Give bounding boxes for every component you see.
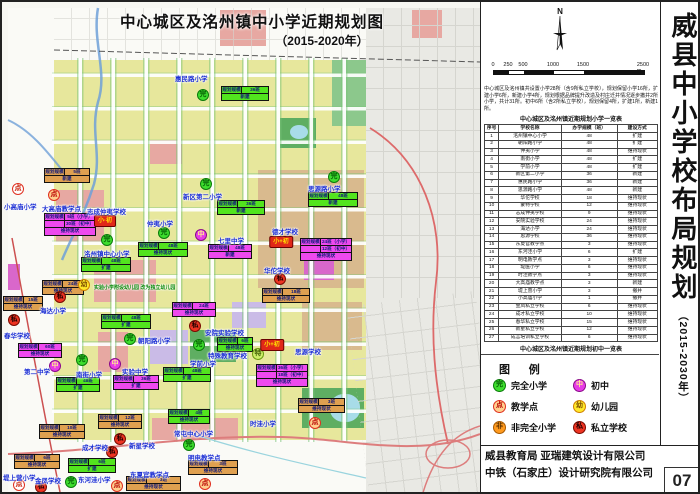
school-plan-label: 规划规模6班扩建 xyxy=(68,458,116,473)
plan-label-row: 维持现状 xyxy=(301,252,351,259)
plan-label-value: 维持现状 xyxy=(4,304,42,310)
plan-label-value: 扩建 xyxy=(69,466,115,472)
plan-label-row: 规划规模24班（小学） xyxy=(301,239,351,245)
table-cell: 明电教学点 xyxy=(499,257,562,265)
table-cell: 东河洼小学 xyxy=(499,249,562,257)
table-cell: 18 xyxy=(485,264,499,272)
plan-label-row: 规划规模4班 xyxy=(169,410,209,416)
north-arrow-icon: N xyxy=(549,6,571,58)
table-cell: 48 xyxy=(561,140,617,148)
plan-label-row: 新建 xyxy=(309,199,357,206)
plan-label-row: 12班（初中） xyxy=(301,245,351,252)
plan-label-row: 规划规模10班 xyxy=(40,425,84,431)
table-cell: 6 xyxy=(561,303,617,311)
table-cell: 东夏官教学点 xyxy=(499,241,562,249)
table-row: 27成言培训私立学校6维持现状 xyxy=(485,334,658,342)
table-row: 9华佗学校18维持现状 xyxy=(485,195,658,203)
plan-label-value: 扩建 xyxy=(114,383,158,389)
dianw-school-icon: 点 xyxy=(12,183,24,195)
table-row: 19时洼教学点3维持现状 xyxy=(485,272,658,280)
plan-label-row: 维持现状 xyxy=(139,249,187,256)
table-cell: 6 xyxy=(485,171,499,179)
table-cell: 维持现状 xyxy=(617,272,657,280)
info-panel: N 0250500100015002500 m 中心城区及洺州镇共设置小学28所… xyxy=(480,2,660,445)
table-cell: 维持现状 xyxy=(617,226,657,234)
table-row: 26新星私立学校12维持现状 xyxy=(485,326,658,334)
zhong-school-icon: 中 xyxy=(109,358,121,370)
school-name-label: 大高庙教学点 xyxy=(42,203,81,213)
primary-school-table: 序号学校名称办学规模（班）建设方式1洺州镇中心小学48扩建2朝阳路小学48扩建3… xyxy=(484,124,658,342)
table-cell: 4 xyxy=(485,156,499,164)
table-cell: 扩建 xyxy=(617,140,657,148)
scale-bar-rule xyxy=(493,70,645,75)
plan-label-row: 规划规模6班 xyxy=(69,459,115,465)
plan-label-row: 新建 xyxy=(209,251,251,258)
table-row: 13海达小学24维持现状 xyxy=(485,226,658,234)
school-plan-label: 规划规模36班扩建 xyxy=(113,375,159,390)
school-plan-label: 规划规模36班新建 xyxy=(221,86,269,101)
table-cell: 维持现状 xyxy=(617,326,657,334)
plan-label-key: 规划规模 xyxy=(222,87,242,93)
table-cell: 3 xyxy=(561,288,617,296)
table-cell: 朝阳路小学 xyxy=(499,140,562,148)
table-cell: 海达小学 xyxy=(499,226,562,234)
plan-label-key: 规划规模 xyxy=(4,297,24,303)
plan-label-row: 规划规模12班 xyxy=(99,415,141,421)
school-name-label: 南街小学 xyxy=(76,369,102,379)
plan-label-value: 扩建 xyxy=(164,375,210,381)
school-plan-label: 规划规模18班维持现状 xyxy=(262,288,310,303)
si-school-icon: 私 xyxy=(573,421,586,434)
school-name-label: 第二中学 xyxy=(24,366,50,376)
school-plan-label: 规划规模4班维持现状 xyxy=(168,409,210,424)
dian-school-icon: 点 xyxy=(111,480,123,492)
plan-label-row: 规划规模6班 xyxy=(218,338,252,344)
plan-label-value: 维持现状 xyxy=(15,462,59,468)
primary-middle-school-icon: 小+初 xyxy=(260,339,284,351)
plan-label-row: 规划规模60班 xyxy=(19,344,61,350)
plan-label-row: 维持现状 xyxy=(169,416,209,423)
table-row: 6新区第二小学36新建 xyxy=(485,171,658,179)
plan-label-value: 维持现状 xyxy=(299,406,344,412)
school-name-label: 仲夷小学 xyxy=(147,218,173,228)
plan-label-value: 维持现状 xyxy=(45,228,95,234)
table-cell: 48 xyxy=(561,187,617,195)
table-cell: 19 xyxy=(485,272,499,280)
table-cell: 扩建 xyxy=(617,133,657,141)
plan-label-row: 扩建 xyxy=(164,374,210,381)
plan-label-value: 48班 xyxy=(329,193,357,199)
school-plan-label: 规划规模24班维持现状 xyxy=(172,302,216,317)
school-name-label: 思源路小学 xyxy=(308,183,341,193)
plan-label-row: 维持现状 xyxy=(173,309,215,316)
table-row: 14思源学校36维持现状 xyxy=(485,233,658,241)
plan-label-value: 48班 xyxy=(229,245,251,251)
table-row: 25春华私立学校15维持现状 xyxy=(485,319,658,327)
plan-label-value: 维持现状 xyxy=(169,417,209,423)
table-cell: 维持现状 xyxy=(617,334,657,342)
plan-label-value: 扩建 xyxy=(57,385,99,391)
school-plan-label: 规划规模3班维持现状 xyxy=(188,460,238,475)
plan-label-row: 维持现状 xyxy=(40,431,84,438)
school-plan-label: 规划规模48班新建 xyxy=(308,192,358,207)
table-cell: 6 xyxy=(561,249,617,257)
plan-label-value: 扩建 xyxy=(102,322,150,328)
table-cell: 15 xyxy=(485,241,499,249)
wan-school-icon: 完 xyxy=(183,439,195,451)
plan-label-value: 10班 xyxy=(60,425,84,431)
table-row: 24成才私立学校10维持现状 xyxy=(485,311,658,319)
plan-label-key: 规划规模 xyxy=(257,365,277,371)
middle-table-title: 中心城区及洺州镇近期规划初中一览表 xyxy=(484,344,658,353)
table-cell: 南街小学 xyxy=(499,156,562,164)
legend: 图 例 完完全小学中初中点教学点幼幼儿园非非完全小学私私立学校 xyxy=(481,354,659,445)
school-name-label: 堤上营小学 xyxy=(3,472,36,482)
table-cell: 48 xyxy=(561,133,617,141)
table-row: 7惠民路小学36新建 xyxy=(485,179,658,187)
legend-item: 中初中 xyxy=(573,379,609,392)
plan-label-value: 维持现状 xyxy=(127,484,180,490)
plan-label-key: 规划规模 xyxy=(218,338,238,344)
plan-label-key: 规划规模 xyxy=(169,410,189,416)
plan-label-value: 新建 xyxy=(222,94,268,100)
table-cell: 金凤私立学校 xyxy=(499,303,562,311)
zhong-school-icon: 中 xyxy=(573,379,586,392)
school-name-label: 东河洼小学 xyxy=(78,474,111,484)
plan-label-row: 规划规模48班 xyxy=(82,258,130,264)
plan-label-row: 规划规模36班（小学） xyxy=(257,365,307,371)
table-cell: 13 xyxy=(485,226,499,234)
plan-label-value: 6班 xyxy=(35,455,59,461)
plan-label-key: 规划规模 xyxy=(69,459,89,465)
plan-label-value: 6班 xyxy=(89,459,115,465)
plan-label-key: 规划规模 xyxy=(114,376,134,382)
table-cell: 小高庙小学 xyxy=(499,295,562,303)
school-plan-label: 规划规模48班新建 xyxy=(208,244,252,259)
plan-label-value: 30班（初中） xyxy=(65,221,95,227)
plan-label-row: 维持现状 xyxy=(15,461,59,468)
scale-label: 500 xyxy=(518,62,527,68)
plan-label-value: 4班 xyxy=(189,410,209,416)
scale-bar: 0250500100015002500 m xyxy=(493,62,645,76)
table-cell: 维持现状 xyxy=(617,202,657,210)
plan-label-row: 扩建 xyxy=(57,384,99,391)
plan-label-row: 规划规模48班 xyxy=(164,368,210,374)
scale-label: 250 xyxy=(503,62,512,68)
table-cell: 蒙特学校 xyxy=(499,202,562,210)
school-name-label: 洺州镇中心小学 xyxy=(84,248,130,258)
table-row: 16东河洼小学6扩建 xyxy=(485,249,658,257)
plan-label-key xyxy=(301,246,321,252)
school-name-label: 新区第二小学 xyxy=(183,191,222,201)
table-cell: 12 xyxy=(485,218,499,226)
table-cell: 思源学校 xyxy=(499,233,562,241)
plan-label-row: 规划规模3班 xyxy=(299,399,344,405)
table-cell: 维持现状 xyxy=(617,218,657,226)
plan-label-row: 规划规模5班 xyxy=(45,169,89,175)
table-header: 序号 xyxy=(485,125,499,133)
school-plan-label: 规划规模5班新建 xyxy=(44,168,90,183)
scale-label: 1000 xyxy=(547,62,559,68)
plan-label-key: 规划规模 xyxy=(40,425,60,431)
plan-label-value: 3班 xyxy=(319,399,344,405)
plan-label-value: 5班 xyxy=(65,169,89,175)
table-cell: 新建 xyxy=(617,179,657,187)
plan-label-row: 维持现状 xyxy=(299,405,344,412)
table-cell: 17 xyxy=(485,257,499,265)
table-row: 10蒙特学校12维持现状 xyxy=(485,202,658,210)
school-plan-label: 规划规模48班扩建 xyxy=(163,367,211,382)
table-cell: 3 xyxy=(561,280,617,288)
plan-label-row: 规划规模48班 xyxy=(139,243,187,249)
table-cell: 48 xyxy=(561,148,617,156)
side-title: 威县中小学校布局规划 xyxy=(668,12,698,302)
table-cell: 10 xyxy=(561,311,617,319)
table-cell: 撤并 xyxy=(617,288,657,296)
wan-school-icon: 完 xyxy=(65,476,77,488)
plan-label-key: 规划规模 xyxy=(15,455,35,461)
scale-label: 0 xyxy=(491,62,494,68)
dian-school-icon: 点 xyxy=(199,478,211,490)
table-cell: 21 xyxy=(485,288,499,296)
table-cell: 24 xyxy=(485,311,499,319)
table-cell: 洺州镇中心小学 xyxy=(499,133,562,141)
plan-label-value: 18班 xyxy=(283,289,309,295)
wan-school-icon: 完 xyxy=(328,171,340,183)
plan-label-key: 规划规模 xyxy=(19,344,39,350)
table-cell: 新建 xyxy=(617,171,657,179)
table-cell: 维持现状 xyxy=(617,311,657,319)
table-row: 1洺州镇中心小学48扩建 xyxy=(485,133,658,141)
plan-label-row: 维持现状 xyxy=(189,467,237,474)
school-plan-label: 规划规模48班扩建 xyxy=(81,257,131,272)
plan-label-value: 新建 xyxy=(218,208,264,214)
table-cell: 36 xyxy=(561,171,617,179)
plan-label-key xyxy=(45,221,65,227)
table-cell: 维持现状 xyxy=(617,241,657,249)
table-cell: 时洼教学点 xyxy=(499,272,562,280)
plan-label-row: 维持现状 xyxy=(45,227,95,234)
primary-middle-school-icon: 小·初 xyxy=(94,215,116,227)
table-cell: 9 xyxy=(485,195,499,203)
plan-label-key: 规划规模 xyxy=(139,243,159,249)
table-cell: 维持现状 xyxy=(617,233,657,241)
plan-label-value: 48班 xyxy=(102,258,130,264)
school-name-label: 惠民路小学 xyxy=(175,73,208,83)
school-name-label: 新星学校 xyxy=(129,440,155,450)
plan-label-row: 规划规模48班 xyxy=(309,193,357,199)
credits-line1: 威县教育局 亚瑞建筑设计有限公司 xyxy=(485,448,700,463)
plan-label-row: 维持现状 xyxy=(99,421,141,428)
plan-label-value: 36班 xyxy=(238,201,264,207)
table-row: 4南街小学48扩建 xyxy=(485,156,658,164)
school-plan-label: 规划规模60班维持现状 xyxy=(18,343,62,358)
plan-label-value: 15班 xyxy=(24,297,42,303)
plan-label-row: 规划规模48班 xyxy=(102,315,150,321)
table-cell: 成言培训私立学校 xyxy=(499,334,562,342)
intro-paragraph: 中心城区及洺州镇共设置小学28所（含9所私立学校），规划保留小学16所，扩建小学… xyxy=(484,86,658,112)
school-plan-label: 规划规模48班扩建 xyxy=(56,377,100,392)
page-number: 07 xyxy=(664,467,700,494)
plan-label-row: 30班（初中） xyxy=(45,220,95,227)
plan-label-row: 维持现状 xyxy=(4,303,42,310)
table-header: 建设方式 xyxy=(617,125,657,133)
planning-poster: 中心城区及洺州镇中小学近期规划图 （2015-2020年） 完惠民路小学规划规模… xyxy=(0,0,700,494)
plan-label-value: 24班 xyxy=(193,303,215,309)
school-plan-label: 规划规模24班（小学）12班（初中）维持现状 xyxy=(300,238,352,261)
plan-label-value: 维持现状 xyxy=(301,253,351,259)
si-school-icon: 私 xyxy=(8,314,20,326)
school-name-label: 海达小学 xyxy=(40,305,66,315)
plan-label-value: 新建 xyxy=(45,176,89,182)
school-plan-label: 规划规模48班维持现状 xyxy=(138,242,188,257)
plan-label-key: 规划规模 xyxy=(301,239,321,245)
plan-label-value: 48班 xyxy=(159,243,187,249)
plan-label-value: 48班 xyxy=(184,368,210,374)
you-school-icon: 幼 xyxy=(78,279,90,291)
table-cell: 扩建 xyxy=(617,164,657,172)
legend-label: 教学点 xyxy=(511,400,538,413)
si-school-icon: 私 xyxy=(189,320,201,332)
plan-label-value: 维持现状 xyxy=(263,296,309,302)
school-name-label: 东夏官教学点 xyxy=(130,469,169,479)
plan-label-value: 36班（小学） xyxy=(277,365,307,371)
table-row: 20大高庙教学点3新建 xyxy=(485,280,658,288)
plan-label-key: 规划规模 xyxy=(263,289,283,295)
table-cell: 27 xyxy=(485,334,499,342)
si-school-icon: 私 xyxy=(54,291,66,303)
plan-label-value: 维持现状 xyxy=(173,310,215,316)
table-cell: 学前小学 xyxy=(499,164,562,172)
table-cell: 维持现状 xyxy=(617,210,657,218)
table-cell: 思源路小学 xyxy=(499,187,562,195)
plan-label-row: 扩建 xyxy=(102,321,150,328)
planning-map: 中心城区及洺州镇中小学近期规划图 （2015-2020年） 完惠民路小学规划规模… xyxy=(2,2,480,492)
plan-label-value: 12班（初中） xyxy=(321,246,351,252)
legend-item: 幼幼儿园 xyxy=(573,400,618,413)
plan-label-row: 规划规模48班 xyxy=(209,245,251,251)
legend-label: 私立学校 xyxy=(591,421,627,434)
school-name-label: 朝阳路小学 xyxy=(138,335,171,345)
table-cell: 6 xyxy=(561,334,617,342)
table-cell: 华佗学校 xyxy=(499,195,562,203)
plan-label-row: 规划规模6班 xyxy=(15,455,59,461)
plan-label-value: 60班 xyxy=(39,344,61,350)
school-name-label: 安院实验学校 xyxy=(205,327,244,337)
school-plan-label: 规划规模15班维持现状 xyxy=(3,296,43,311)
table-cell: 12 xyxy=(561,202,617,210)
wan-school-icon: 完 xyxy=(124,333,136,345)
table-cell: 1 xyxy=(485,133,499,141)
plan-label-key: 规划规模 xyxy=(43,281,63,287)
plan-label-key: 规划规模 xyxy=(82,258,102,264)
credits-block: 威县教育局 亚瑞建筑设计有限公司 中铁（石家庄）设计研究院有限公司 07 xyxy=(480,445,700,494)
table-cell: 新建 xyxy=(617,280,657,288)
plan-label-key xyxy=(257,372,277,378)
wan-school-icon: 完 xyxy=(200,178,212,190)
scale-label: 1500 xyxy=(577,62,589,68)
wan-school-icon: 完 xyxy=(76,354,88,366)
school-name-label: 德才学校 xyxy=(272,226,298,236)
table-cell: 48 xyxy=(561,164,617,172)
table-row: 17明电教学点3维持现状 xyxy=(485,257,658,265)
table-cell: 16 xyxy=(485,249,499,257)
legend-label: 完全小学 xyxy=(511,379,547,392)
table-cell: 1 xyxy=(561,295,617,303)
plan-label-value: 维持现状 xyxy=(99,422,141,428)
plan-label-row: 扩建 xyxy=(82,264,130,271)
table-cell: 6 xyxy=(561,264,617,272)
legend-item: 非非完全小学 xyxy=(493,421,556,434)
table-cell: 堤医小学 xyxy=(499,264,562,272)
table-cell: 维持现状 xyxy=(617,257,657,265)
school-name-label: 实验中学 xyxy=(122,366,148,376)
table-row: 2朝阳路小学48扩建 xyxy=(485,140,658,148)
school-plan-label: 规划规模6班维持现状 xyxy=(14,454,60,469)
plan-label-row: 扩建 xyxy=(114,382,158,389)
school-name-label: 明电教学点 xyxy=(188,452,221,462)
table-cell: 志成仲夷学校 xyxy=(499,210,562,218)
plan-label-key: 规划规模 xyxy=(57,378,77,384)
school-name-label: 思源学校 xyxy=(295,346,321,356)
side-title-years: （2015-2030年） xyxy=(677,310,689,404)
plan-label-value: 维持现状 xyxy=(139,250,187,256)
school-plan-label: 规划规模48班扩建 xyxy=(101,314,151,329)
plan-label-value: 48班 xyxy=(122,315,150,321)
table-cell: 36 xyxy=(561,179,617,187)
table-cell: 撤并 xyxy=(617,295,657,303)
plan-label-row: 维持现状 xyxy=(127,483,180,490)
table-cell: 22 xyxy=(485,295,499,303)
plan-label-key: 规划规模 xyxy=(218,201,238,207)
table-row: 3仲夷小学48维持现状 xyxy=(485,148,658,156)
table-row: 11志成仲夷学校9维持现状 xyxy=(485,210,658,218)
table-cell: 9 xyxy=(561,210,617,218)
table-cell: 5 xyxy=(485,164,499,172)
plan-label-row: 规划规模36班 xyxy=(222,87,268,93)
legend-item: 私私立学校 xyxy=(573,421,627,434)
wan-school-icon: 完 xyxy=(158,227,170,239)
plan-label-value: 36班 xyxy=(134,376,158,382)
fei-school-icon: 非 xyxy=(493,421,506,434)
table-cell: 维持现状 xyxy=(617,303,657,311)
table-row: 23金凤私立学校6维持现状 xyxy=(485,303,658,311)
si-school-icon: 私 xyxy=(114,433,126,445)
wan-school-icon: 完 xyxy=(197,89,209,101)
table-row: 8思源路小学48新建 xyxy=(485,187,658,195)
legend-label: 非完全小学 xyxy=(511,421,556,434)
table-cell: 维持现状 xyxy=(617,264,657,272)
wan-school-icon: 完 xyxy=(101,234,113,246)
plan-label-row: 新建 xyxy=(222,93,268,100)
school-name-label: 七里中学 xyxy=(218,235,244,245)
plan-label-key: 规划规模 xyxy=(309,193,329,199)
school-plan-label: 规划规模12班维持现状 xyxy=(98,414,142,429)
plan-label-value: 24班（小学） xyxy=(321,239,351,245)
school-name-label: 成才学校 xyxy=(82,442,108,452)
school-plan-label: 规划规模36班（小学）18班（初中）维持现状 xyxy=(256,364,308,387)
plan-label-row: 维持现状 xyxy=(19,350,61,357)
table-cell: 15 xyxy=(561,319,617,327)
school-plan-label: 规划规模3班维持现状 xyxy=(298,398,345,413)
table-cell: 8 xyxy=(485,187,499,195)
plan-label-key: 规划规模 xyxy=(173,303,193,309)
table-cell: 20 xyxy=(485,280,499,288)
table-cell: 18 xyxy=(561,195,617,203)
dian-school-icon: 点 xyxy=(48,189,60,201)
plan-label-value: 维持现状 xyxy=(257,379,307,385)
school-name-label: 金凤学校 xyxy=(35,475,61,485)
